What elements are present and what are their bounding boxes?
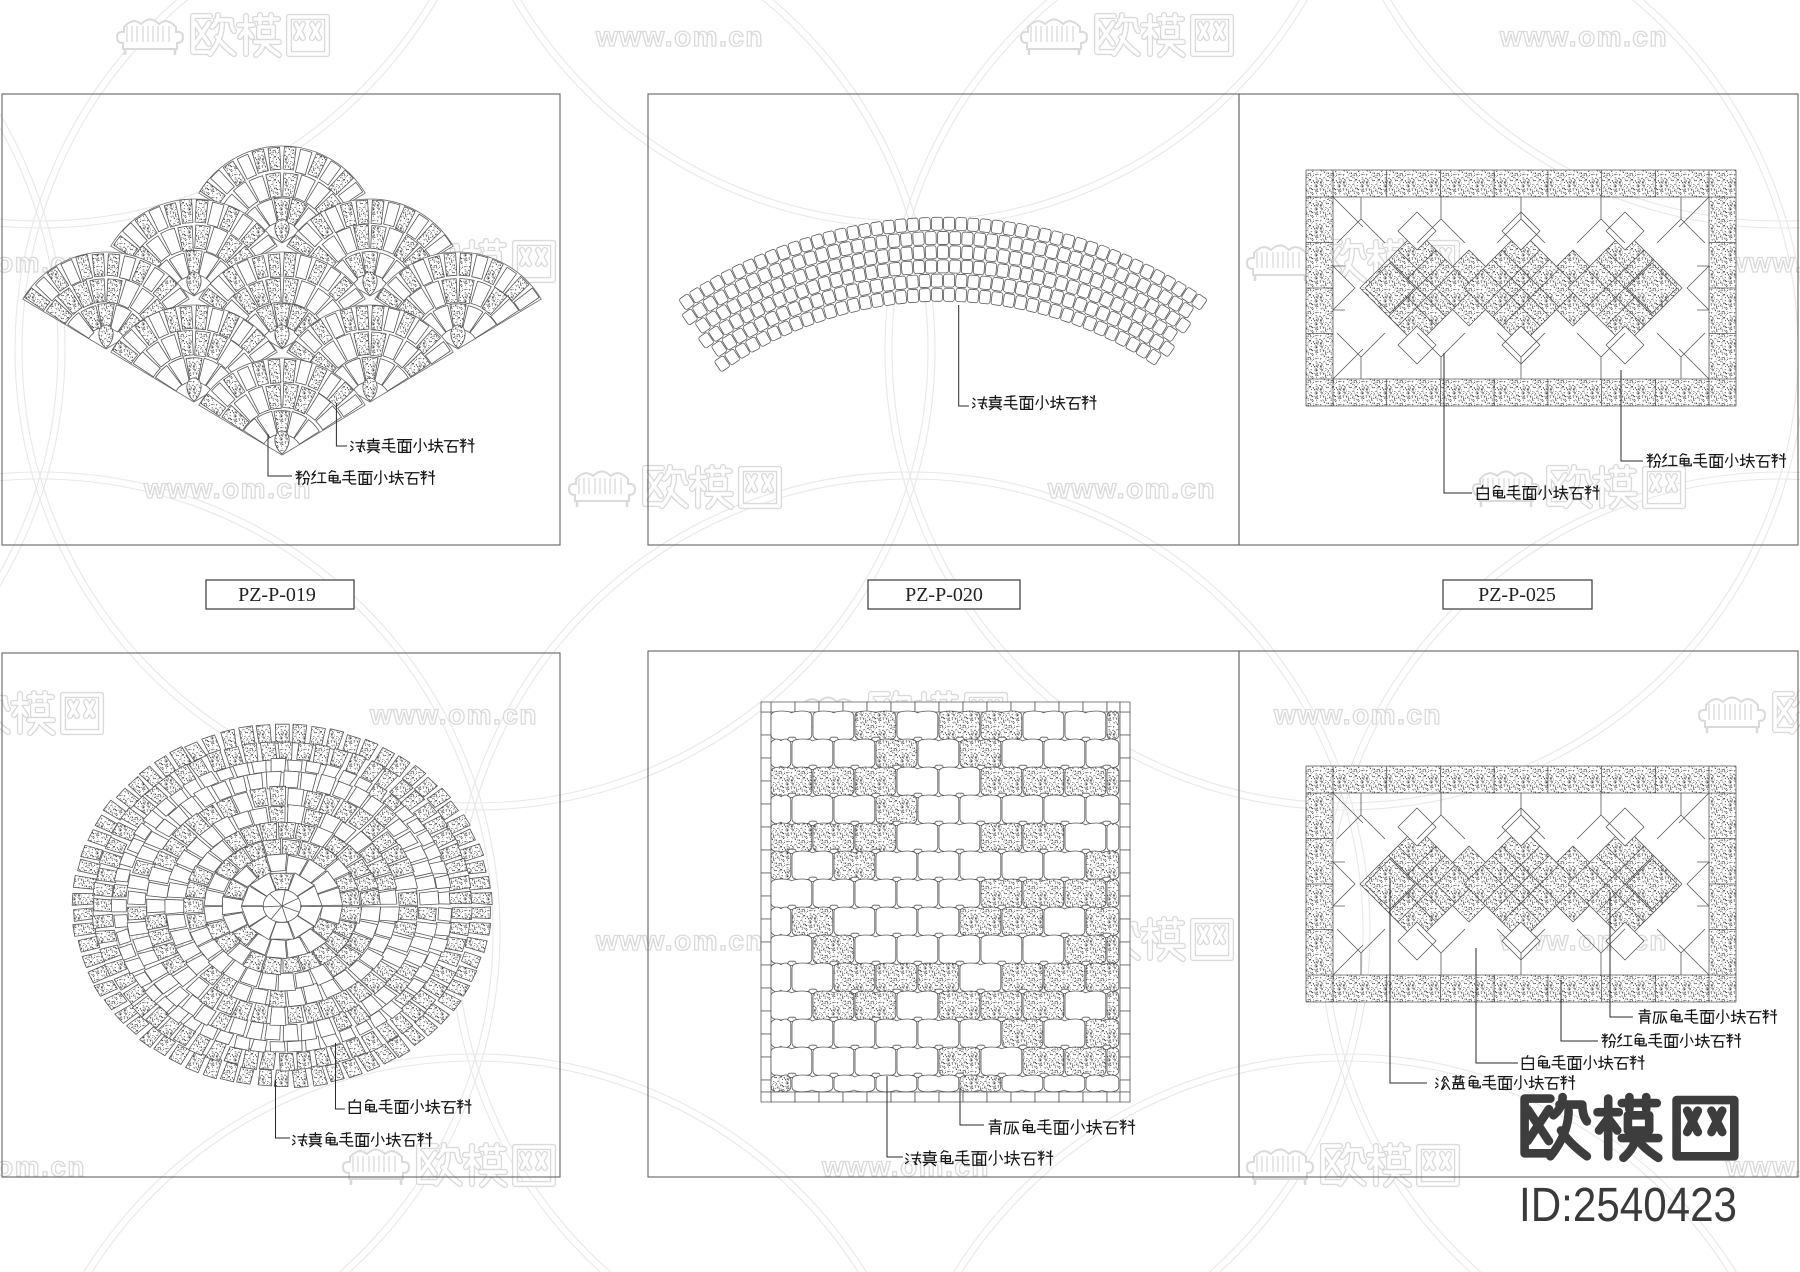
svg-text:ID:2540423: ID:2540423 (1519, 1179, 1737, 1232)
svg-text:PZ-P-025: PZ-P-025 (1478, 584, 1556, 606)
svg-text:PZ-P-020: PZ-P-020 (905, 584, 983, 606)
svg-text:PZ-P-019: PZ-P-019 (238, 584, 316, 606)
